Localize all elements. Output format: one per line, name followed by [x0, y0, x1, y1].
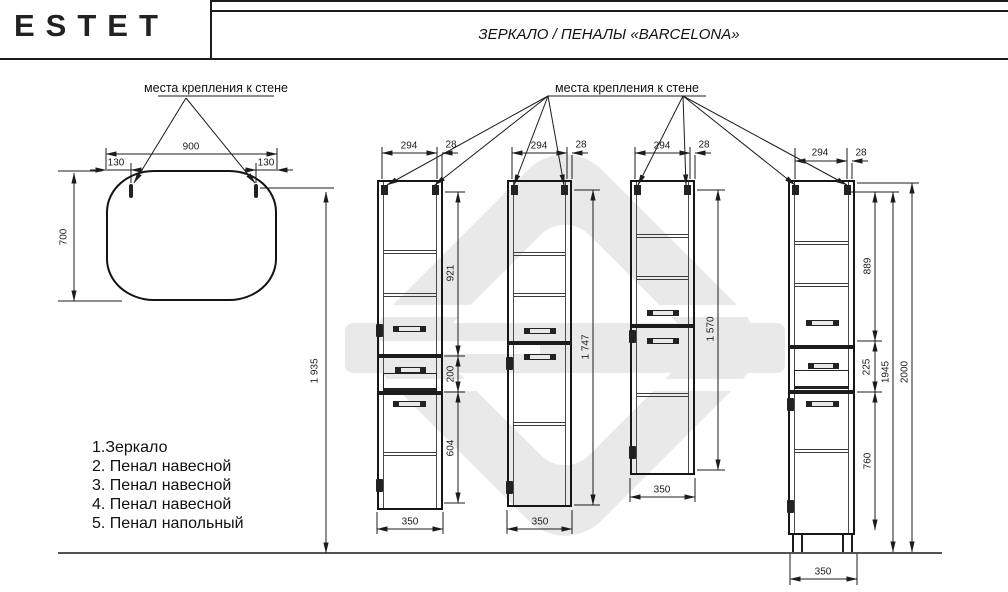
dim-cab3-height: 1 570 — [706, 316, 717, 341]
hinge — [376, 479, 383, 492]
door-handle — [806, 320, 839, 326]
shelf-line — [637, 234, 688, 238]
dim-cab1-lower: 604 — [446, 440, 457, 457]
cabinet-4-body — [788, 180, 855, 535]
dim-cab3-width: 350 — [654, 485, 671, 496]
shelf-line — [795, 449, 848, 453]
shelf-line — [795, 283, 848, 287]
estet-logo: ESTET — [14, 8, 169, 44]
dim-mirror-height: 700 — [59, 229, 70, 246]
shelf-line — [637, 393, 688, 397]
shelf-line — [637, 276, 688, 280]
dim-cab1-upper: 921 — [446, 265, 457, 282]
door-handle — [393, 401, 426, 407]
hinge — [629, 446, 636, 459]
dim-cab4-total-height: 2000 — [900, 361, 911, 383]
shelf-line — [795, 241, 848, 245]
shelf-line — [514, 293, 565, 297]
shelf-line — [384, 452, 436, 456]
cabinet-1-mount-bracket-right — [432, 185, 439, 195]
dim-mirror-width: 900 — [183, 142, 200, 153]
hinge — [506, 357, 513, 370]
dim-cab4-lower: 760 — [863, 453, 874, 470]
legend-item-mirror: 1.Зеркало — [92, 438, 244, 457]
legend-item-cabinet-3: 3. Пенал навесной — [92, 476, 244, 495]
cabinet-4-mount-bracket-left — [792, 185, 799, 195]
drawer-front — [794, 370, 849, 389]
dim-mirror-right-offset: 130 — [258, 158, 275, 169]
drawer-handle — [808, 363, 839, 369]
drawing-sheet: ESTET ЗЕРКАЛО / ПЕНАЛЫ «BARCELONA» — [0, 0, 1008, 592]
dim-cab4-body-height: 1945 — [881, 361, 892, 383]
shelf-line — [384, 250, 436, 254]
mirror-mount-screw-left — [129, 184, 133, 198]
door-handle — [647, 310, 679, 316]
cabinet-2-mount-bracket-right — [561, 185, 568, 195]
cabinet-4-leg-right — [842, 535, 853, 552]
cabinet-1-frame-line-right — [436, 182, 437, 508]
hinge — [629, 330, 636, 343]
dim-mirror-left-offset: 130 — [108, 158, 125, 169]
door-handle — [806, 401, 839, 407]
shelf-line — [514, 422, 565, 426]
legend-item-cabinet-2: 2. Пенал навесной — [92, 457, 244, 476]
hinge — [787, 500, 794, 513]
legend-list: 1.Зеркало 2. Пенал навесной 3. Пенал нав… — [92, 438, 244, 533]
dim-cab2-height: 1 747 — [581, 334, 592, 359]
dim-cab3-door-width: 294 — [654, 141, 671, 152]
dim-cab2-door-width: 294 — [531, 141, 548, 152]
mirror-mount-label: места крепления к стене — [144, 81, 288, 95]
cabinet-4-frame-line-right — [848, 182, 849, 533]
door-handle — [524, 328, 556, 334]
cabinet-4-leg-left — [792, 535, 803, 552]
cabinet-3-body — [630, 180, 695, 475]
cabinet-mount-label: места крепления к стене — [555, 81, 699, 95]
cabinet-2-mount-bracket-left — [511, 185, 518, 195]
door-divider — [789, 345, 854, 349]
dim-cab1-width: 350 — [402, 517, 419, 528]
door-handle — [393, 326, 426, 332]
dim-cab1-door-width: 294 — [401, 141, 418, 152]
door-divider — [378, 391, 442, 395]
door-divider — [508, 341, 571, 345]
door-handle — [524, 354, 556, 360]
cabinet-4-frame-line-left — [794, 182, 795, 533]
dim-cab1-drawer: 200 — [446, 366, 457, 383]
dim-cab4-overhang: 28 — [855, 148, 866, 159]
door-handle — [647, 338, 679, 344]
dim-cab4-upper: 889 — [863, 258, 874, 275]
shelf-line — [514, 252, 565, 256]
cabinet-4-mount-bracket-right — [844, 185, 851, 195]
dim-cab4-drawer: 225 — [862, 359, 873, 376]
dim-cab1-overhang: 28 — [445, 140, 456, 151]
cabinet-1-body — [377, 180, 443, 510]
hinge — [787, 398, 794, 411]
mirror-mount-screw-right — [254, 184, 258, 198]
hinge — [376, 324, 383, 337]
door-divider — [631, 324, 694, 328]
sheet-title: ЗЕРКАЛО / ПЕНАЛЫ «BARCELONA» — [210, 10, 1008, 59]
hinge — [506, 481, 513, 494]
cabinet-3-mount-bracket-right — [684, 185, 691, 195]
dim-cab2-overhang: 28 — [575, 140, 586, 151]
dim-mirror-mount-height: 1 935 — [310, 358, 321, 383]
dim-cab3-overhang: 28 — [698, 140, 709, 151]
drawer-front — [383, 373, 437, 391]
dim-cab4-width: 350 — [815, 567, 832, 578]
cabinet-1-frame-line-left — [383, 182, 384, 508]
legend-item-cabinet-5: 5. Пенал напольный — [92, 514, 244, 533]
door-divider — [378, 354, 442, 358]
door-divider — [789, 390, 854, 394]
shelf-line — [384, 293, 436, 297]
cabinet-2-body — [507, 180, 572, 507]
dim-cab4-door-width: 294 — [812, 148, 829, 159]
legend-item-cabinet-4: 4. Пенал навесной — [92, 495, 244, 514]
dim-cab2-width: 350 — [532, 517, 549, 528]
cabinet-1-mount-bracket-left — [381, 185, 388, 195]
cabinet-3-mount-bracket-left — [634, 185, 641, 195]
header-top-border — [210, 0, 1008, 2]
